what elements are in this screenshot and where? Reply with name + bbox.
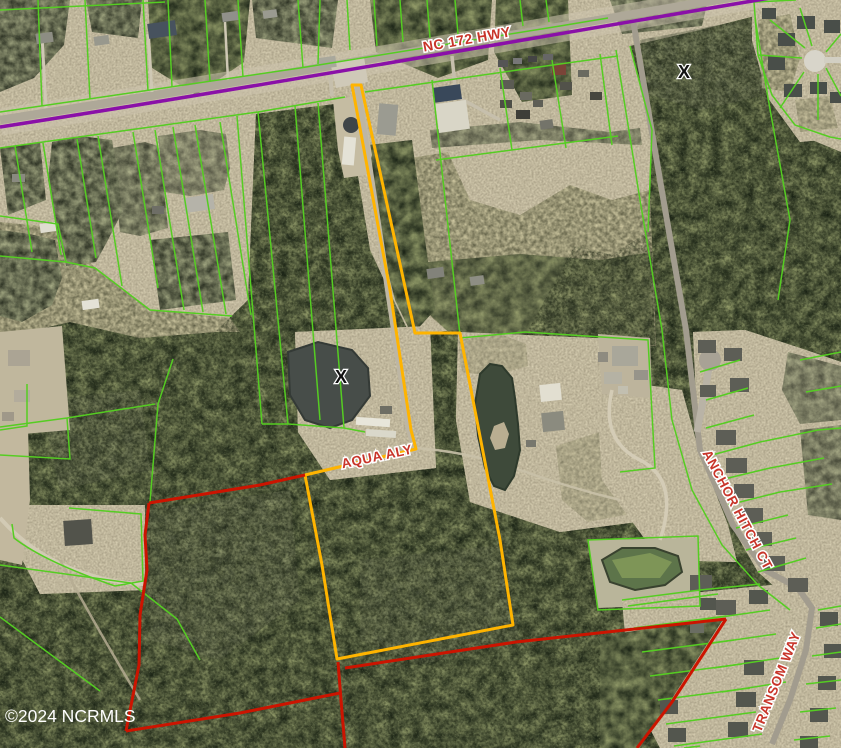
svg-text:X: X xyxy=(678,62,690,82)
svg-text:X: X xyxy=(335,367,347,387)
svg-text:©2024 NCRMLS: ©2024 NCRMLS xyxy=(5,706,136,726)
